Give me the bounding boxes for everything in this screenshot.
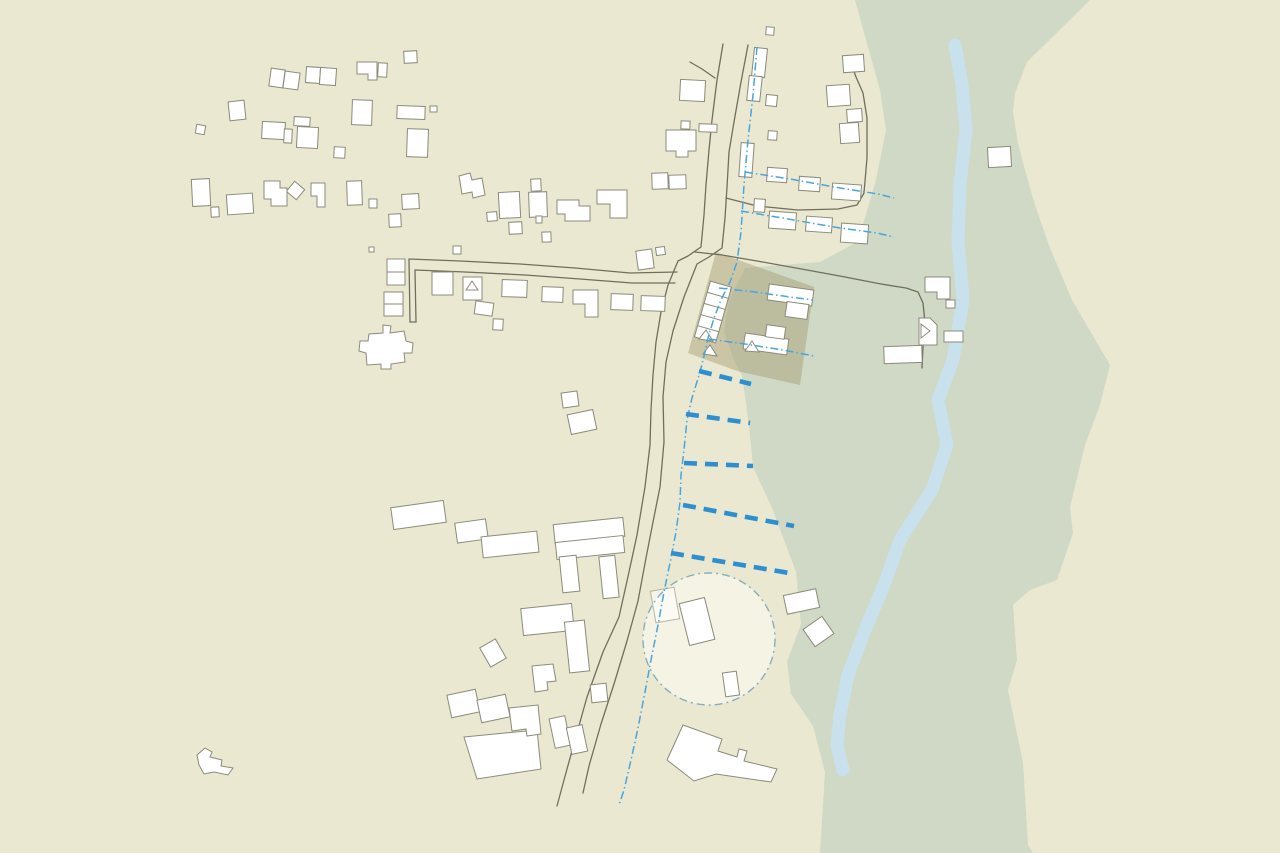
building <box>752 47 768 77</box>
building <box>384 292 403 304</box>
building <box>636 249 654 270</box>
building <box>262 121 286 139</box>
building <box>498 191 520 218</box>
building <box>561 391 579 408</box>
building <box>842 54 864 72</box>
building <box>430 106 437 112</box>
building <box>347 181 363 206</box>
building <box>536 216 542 223</box>
building <box>785 302 809 320</box>
building <box>768 131 778 141</box>
building <box>840 223 868 244</box>
building <box>679 79 705 101</box>
building <box>531 179 542 192</box>
building <box>404 51 418 64</box>
building <box>884 345 923 363</box>
building <box>226 193 253 215</box>
building <box>946 300 955 308</box>
building <box>378 63 388 77</box>
building <box>765 325 785 340</box>
building <box>369 247 374 252</box>
building <box>305 67 320 84</box>
building <box>402 194 420 210</box>
building <box>681 121 690 129</box>
building <box>269 68 285 88</box>
building <box>559 555 580 593</box>
building <box>387 259 405 272</box>
building <box>487 212 498 222</box>
building <box>542 287 564 303</box>
building <box>296 126 318 148</box>
building <box>389 214 402 228</box>
building <box>334 147 346 159</box>
building <box>319 67 336 85</box>
building <box>529 192 548 218</box>
building <box>655 246 665 255</box>
building <box>669 175 686 190</box>
building <box>384 304 403 316</box>
building <box>767 167 788 182</box>
building <box>611 294 634 311</box>
building <box>294 117 310 127</box>
building <box>228 100 246 121</box>
building <box>765 94 777 106</box>
building <box>387 272 405 285</box>
building <box>847 108 863 122</box>
building <box>826 84 850 107</box>
building <box>987 146 1011 167</box>
site-plan-map <box>0 0 1280 853</box>
building <box>283 71 300 90</box>
building <box>211 207 220 217</box>
building <box>191 179 210 207</box>
building <box>542 232 551 242</box>
building <box>502 280 528 298</box>
building <box>284 129 293 143</box>
building <box>839 122 859 143</box>
building <box>831 183 861 201</box>
building <box>722 671 739 697</box>
building <box>352 100 373 126</box>
building <box>652 173 669 190</box>
building <box>641 296 666 312</box>
building <box>699 124 717 133</box>
building <box>754 199 766 213</box>
building <box>650 587 679 623</box>
building <box>474 301 494 316</box>
building <box>432 272 453 295</box>
site-plan-canvas <box>0 0 1280 853</box>
building <box>369 199 377 208</box>
building <box>766 27 775 36</box>
building <box>590 683 608 703</box>
building <box>407 129 429 158</box>
building <box>397 106 425 120</box>
building <box>509 222 523 235</box>
building <box>195 124 205 134</box>
building <box>453 246 461 254</box>
building <box>944 331 963 342</box>
building <box>493 319 504 331</box>
